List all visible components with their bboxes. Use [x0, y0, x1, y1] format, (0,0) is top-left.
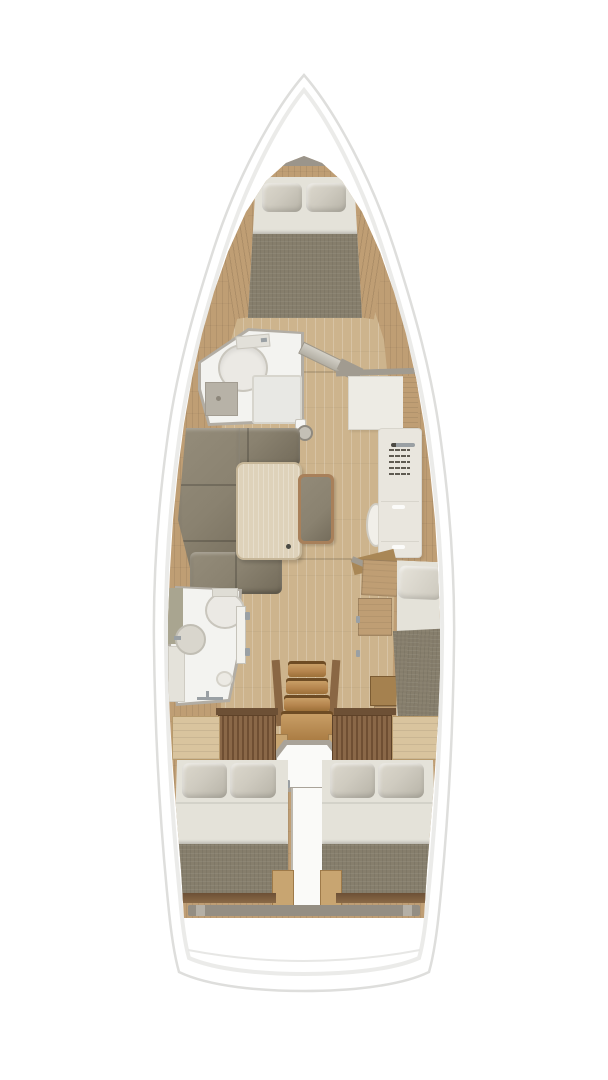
cockpit-step-band [188, 905, 420, 916]
sheet-fold [174, 802, 288, 804]
stair-tread [288, 664, 326, 677]
shelf-unit [172, 716, 220, 760]
pillow [262, 183, 302, 212]
stair-tread [284, 698, 330, 711]
shower-mixer-handle [206, 691, 209, 700]
bed-foot-trim [336, 893, 436, 903]
bench-cushion [301, 477, 331, 541]
door-seam [381, 501, 419, 502]
wardrobe-top-trim [334, 708, 396, 715]
nav-locker-top [348, 376, 404, 430]
round-sink [175, 624, 206, 655]
cushion-seam [178, 540, 240, 542]
vent-grille [388, 449, 410, 475]
port-aft-double-bed [174, 760, 288, 902]
cushion-seam [247, 428, 249, 466]
locker-wood-edge [403, 376, 418, 428]
hinge-icon [245, 612, 250, 620]
stair-platform [281, 714, 333, 740]
stair-tread [286, 681, 328, 694]
bed-foot-trim [176, 893, 276, 903]
cushion-seam [178, 484, 240, 486]
yacht-floorplan [0, 0, 608, 1080]
bath-shelf [168, 646, 185, 702]
toilet-cistern [212, 588, 238, 597]
vberth-double-bed [248, 177, 362, 318]
handle-icon [356, 616, 360, 623]
blanket [248, 234, 362, 318]
hinge-icon [245, 648, 250, 656]
pillow [182, 763, 227, 798]
faucet-icon [174, 636, 181, 640]
bench-seat [298, 474, 334, 544]
latch [392, 505, 405, 509]
wardrobe-top-trim [216, 708, 278, 715]
pillow [330, 763, 375, 798]
pillow [306, 183, 346, 212]
vanity-sink [205, 382, 238, 416]
shower-mixer [197, 697, 223, 700]
sheet-fold [322, 802, 436, 804]
pillow [397, 565, 442, 600]
step-notch [403, 905, 412, 916]
pillow [378, 763, 424, 798]
handle-icon [391, 443, 415, 447]
latch [392, 545, 405, 549]
pillow [230, 763, 276, 798]
step-notch [196, 905, 205, 916]
salon-table [236, 462, 302, 560]
shelf-unit [392, 716, 442, 760]
door-seam [381, 541, 419, 542]
wardrobe-panel [332, 715, 392, 761]
wardrobe-panel [218, 715, 276, 761]
galley-counter [378, 428, 422, 558]
table-leg [286, 544, 291, 549]
flush-button [261, 338, 267, 343]
mid-cabin-locker [358, 598, 392, 636]
drain-icon [216, 396, 221, 401]
shower-drain [216, 671, 233, 687]
handle-icon [356, 650, 360, 657]
shower-tray [252, 375, 302, 424]
